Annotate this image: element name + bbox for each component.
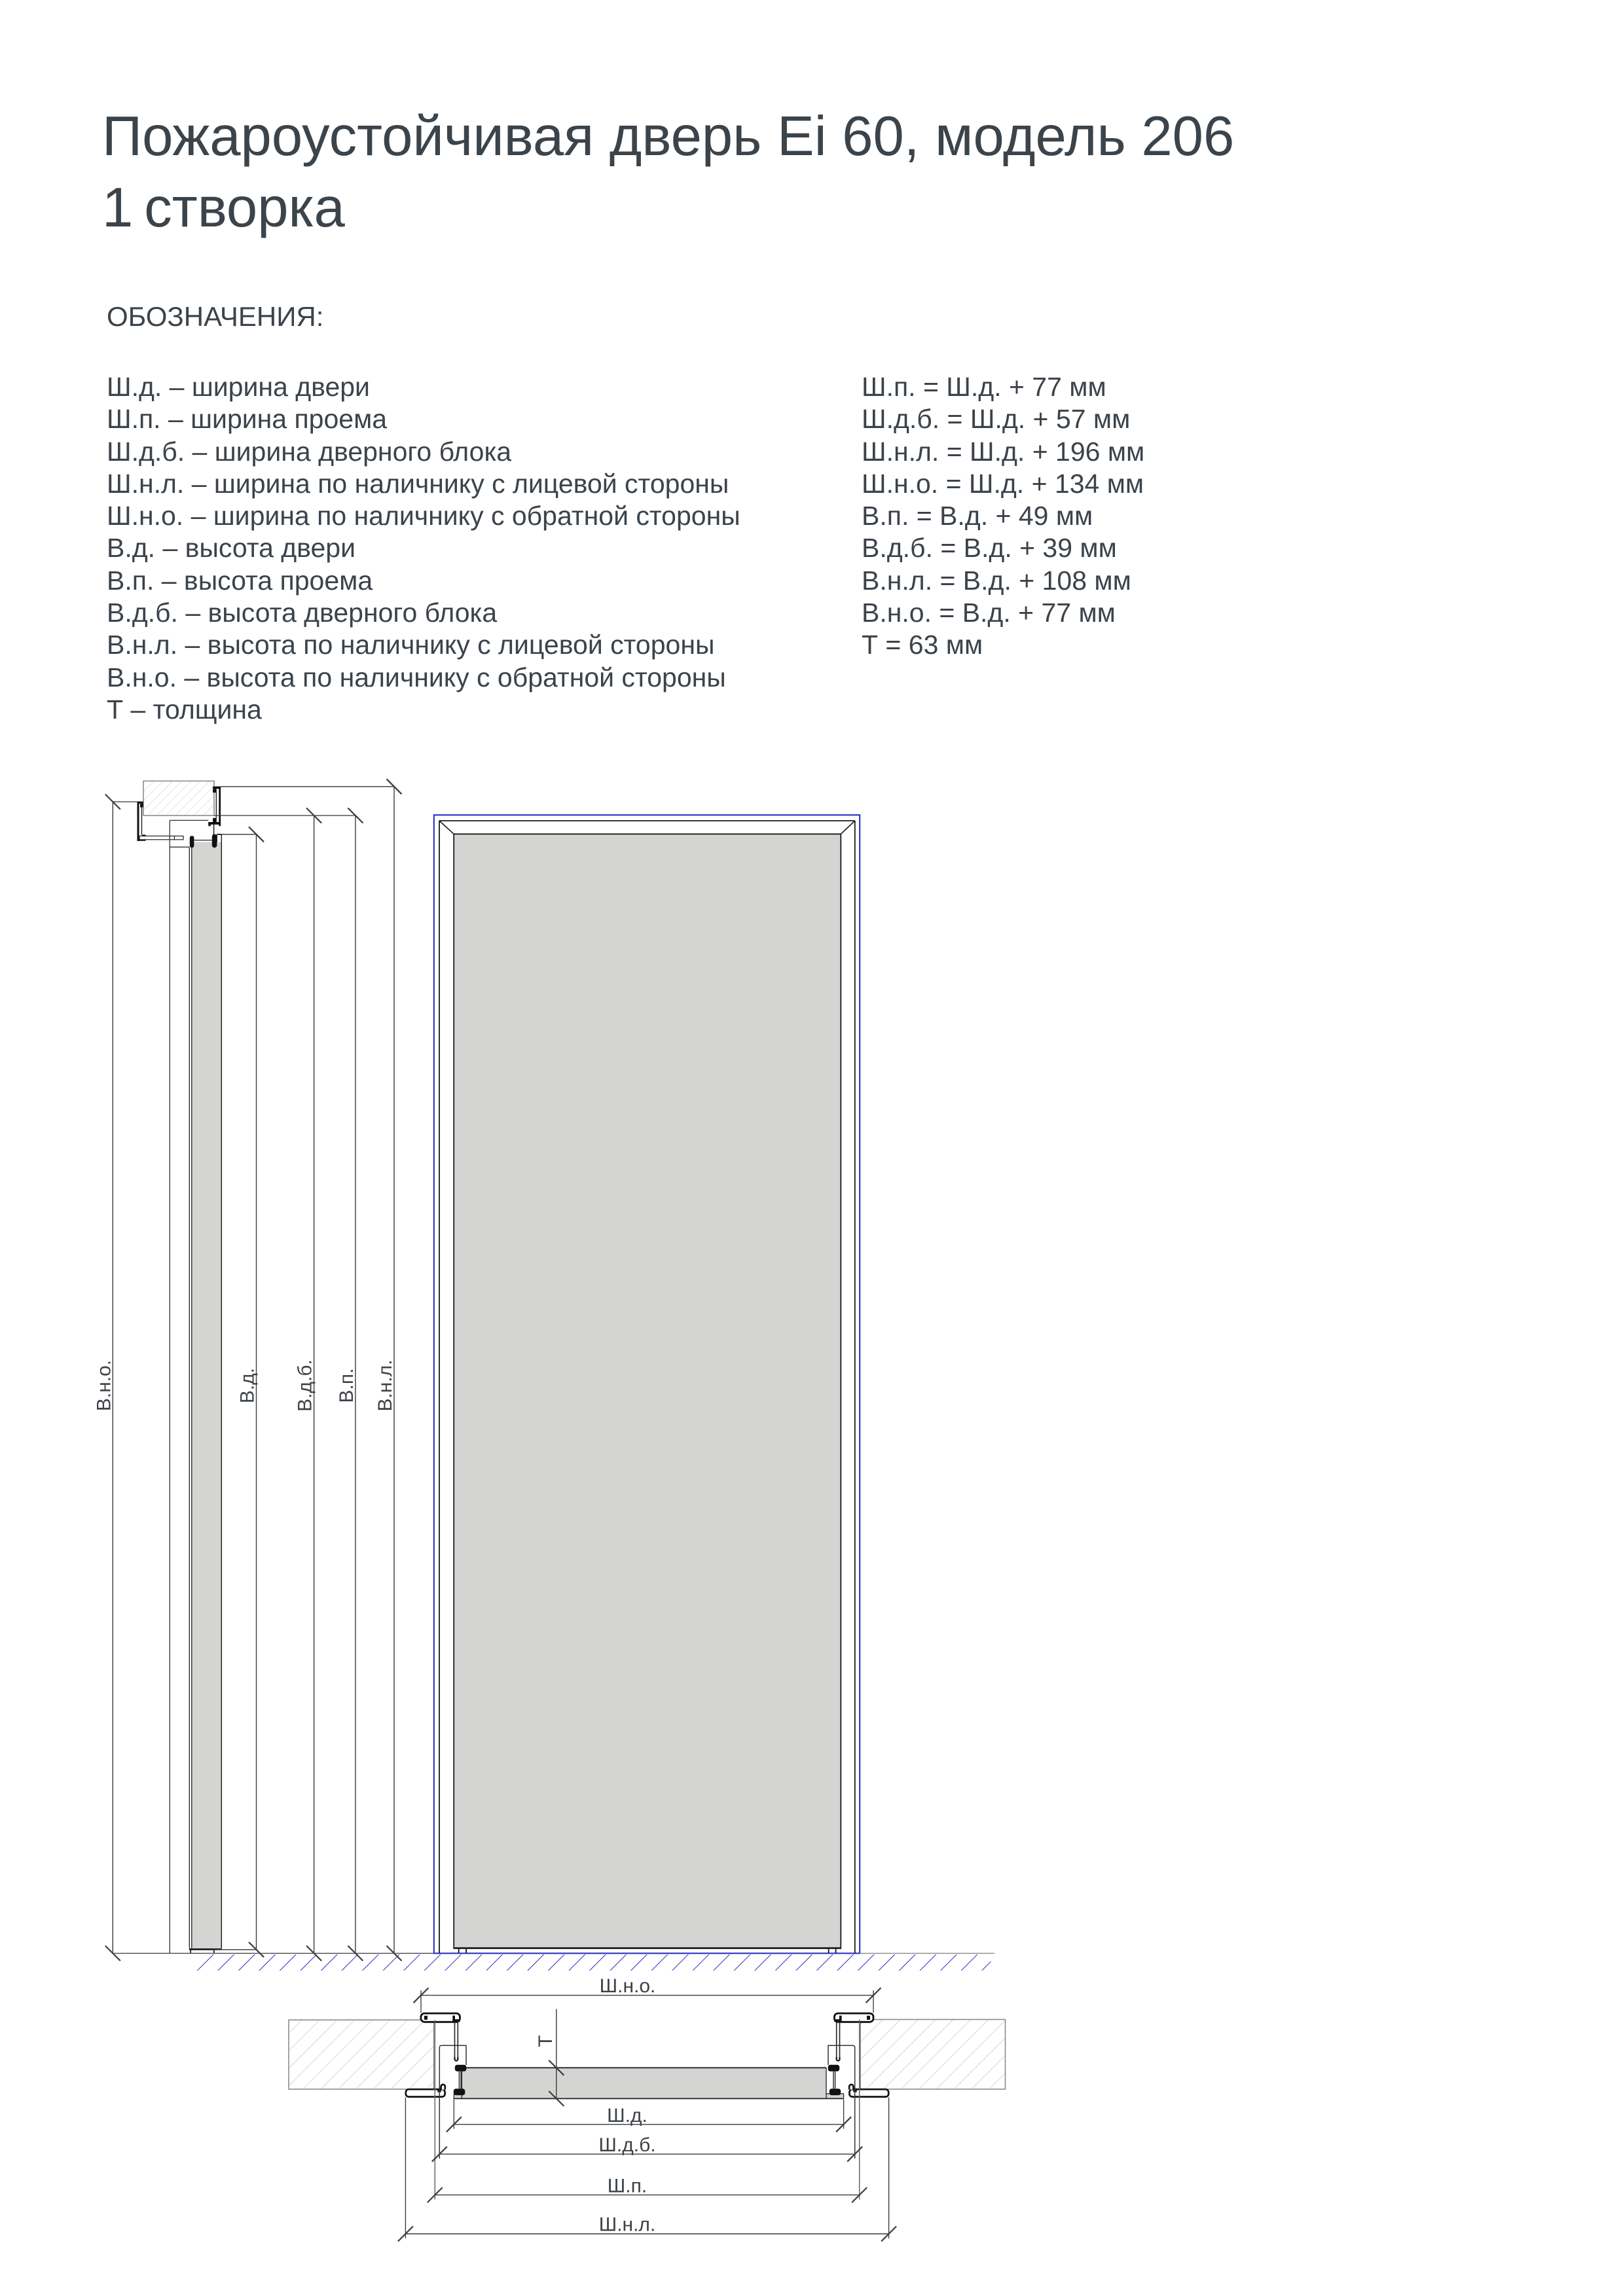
svg-text:В.н.о.: В.н.о. [93,1360,115,1411]
svg-text:Ш.д.б.: Ш.д.б. [598,2134,655,2156]
svg-text:Ш.н.л.: Ш.н.л. [599,2214,656,2236]
svg-text:Ш.п.: Ш.п. [608,2176,647,2197]
svg-text:В.д.б.: В.д.б. [295,1359,316,1412]
svg-text:В.д.: В.д. [237,1368,259,1403]
svg-text:Т: Т [535,2035,556,2047]
svg-text:В.н.л.: В.н.л. [374,1359,396,1411]
svg-text:В.п.: В.п. [336,1369,357,1403]
svg-text:Ш.д.: Ш.д. [607,2105,647,2126]
svg-text:Ш.н.о.: Ш.н.о. [600,1975,656,1997]
